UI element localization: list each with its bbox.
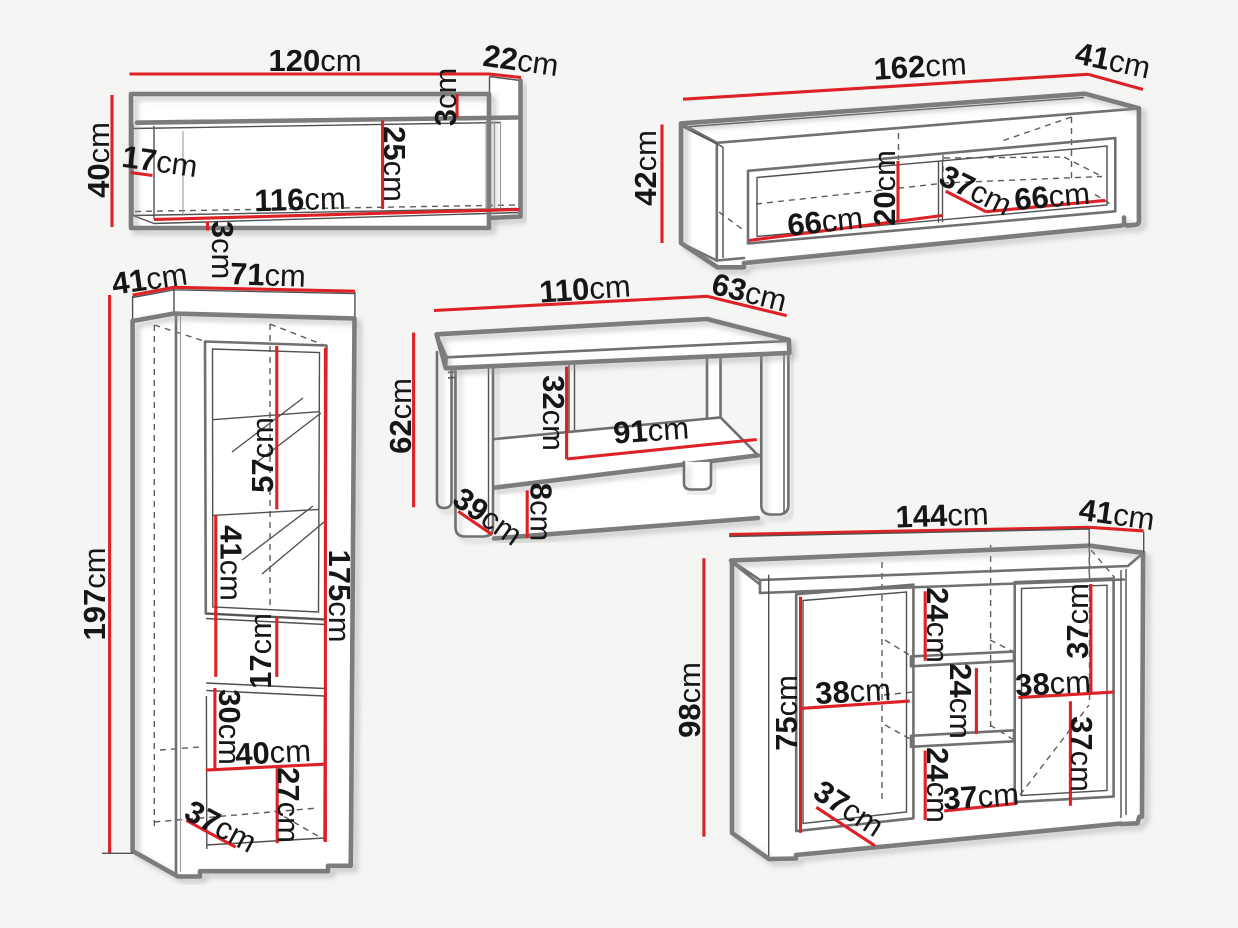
svg-text:91cm: 91cm bbox=[612, 410, 690, 450]
svg-text:40cm: 40cm bbox=[81, 122, 116, 198]
svg-text:144cm: 144cm bbox=[895, 496, 989, 534]
svg-text:75cm: 75cm bbox=[769, 675, 804, 751]
svg-text:40cm: 40cm bbox=[234, 733, 312, 772]
svg-text:98cm: 98cm bbox=[672, 662, 707, 738]
svg-text:38cm: 38cm bbox=[1014, 664, 1092, 703]
svg-text:17cm: 17cm bbox=[243, 613, 278, 689]
svg-text:41cm: 41cm bbox=[214, 525, 249, 601]
svg-text:63cm: 63cm bbox=[708, 266, 790, 318]
svg-text:42cm: 42cm bbox=[628, 130, 663, 206]
svg-text:37cm: 37cm bbox=[942, 776, 1020, 816]
svg-text:197cm: 197cm bbox=[77, 547, 112, 640]
svg-text:57cm: 57cm bbox=[245, 417, 280, 493]
svg-text:24cm: 24cm bbox=[944, 663, 979, 739]
svg-text:32cm: 32cm bbox=[537, 375, 572, 451]
svg-text:175cm: 175cm bbox=[323, 549, 358, 642]
svg-text:37cm: 37cm bbox=[1060, 583, 1095, 659]
svg-text:66cm: 66cm bbox=[1013, 175, 1092, 216]
svg-text:38cm: 38cm bbox=[814, 672, 892, 711]
svg-text:116cm: 116cm bbox=[254, 180, 346, 217]
svg-text:37cm: 37cm bbox=[1065, 716, 1100, 792]
svg-text:24cm: 24cm bbox=[921, 587, 956, 663]
svg-text:27cm: 27cm bbox=[272, 767, 307, 843]
svg-text:62cm: 62cm bbox=[383, 378, 418, 454]
svg-text:8cm: 8cm bbox=[524, 483, 559, 542]
svg-text:41cm: 41cm bbox=[1072, 35, 1153, 85]
svg-text:120cm: 120cm bbox=[268, 43, 361, 78]
svg-text:25cm: 25cm bbox=[378, 126, 413, 202]
svg-text:3cm: 3cm bbox=[428, 68, 463, 127]
svg-text:20cm: 20cm bbox=[867, 150, 902, 226]
svg-text:71cm: 71cm bbox=[230, 256, 307, 294]
svg-text:110cm: 110cm bbox=[538, 268, 632, 309]
svg-text:162cm: 162cm bbox=[872, 46, 967, 87]
